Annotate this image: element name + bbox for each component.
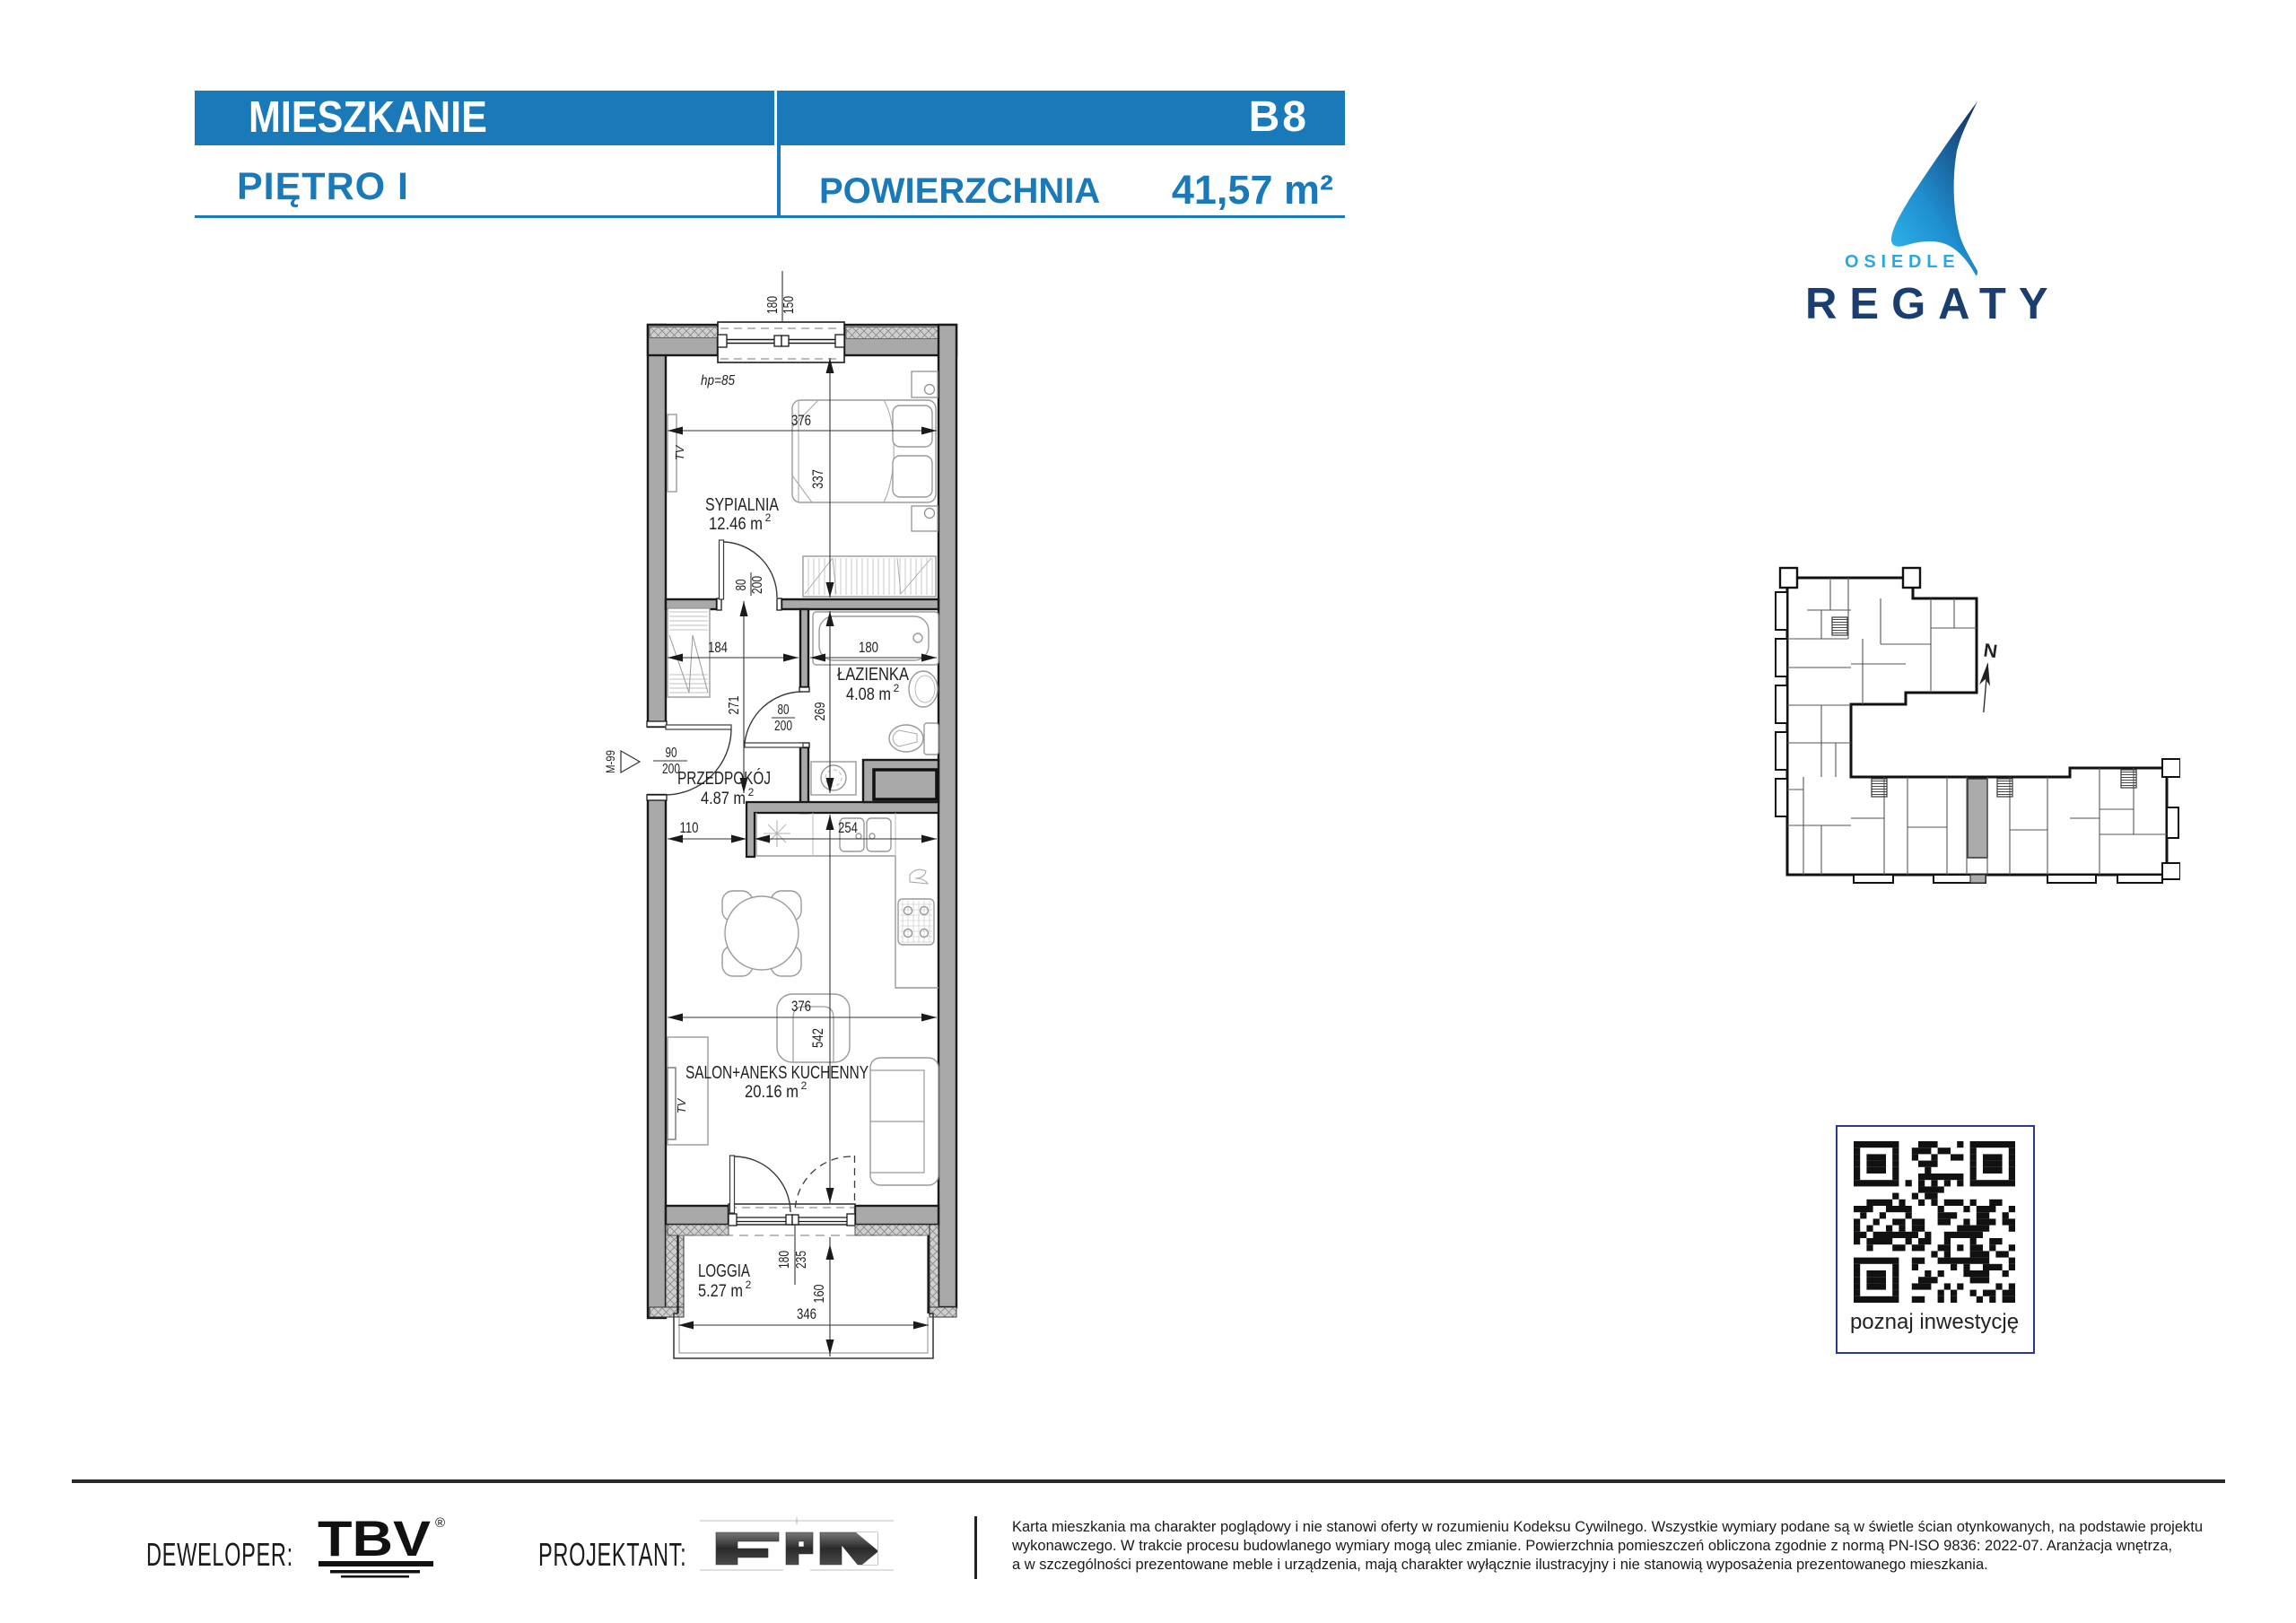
svg-text:271: 271 [727,696,742,715]
svg-text:2: 2 [748,786,755,798]
svg-text:110: 110 [680,819,699,836]
svg-text:2: 2 [801,1079,808,1092]
svg-text:150: 150 [781,296,797,314]
svg-text:180: 180 [765,296,781,314]
svg-text:REGATY: REGATY [1805,280,2061,328]
svg-text:180: 180 [777,1251,792,1269]
svg-text:20.16 m: 20.16 m [745,1082,799,1102]
svg-text:80: 80 [778,702,790,718]
svg-text:TBV: TBV [318,1511,431,1566]
svg-text:2: 2 [746,1278,752,1291]
svg-text:SALON+ANEKS KUCHENNY: SALON+ANEKS KUCHENNY [685,1062,869,1083]
svg-text:80: 80 [734,579,749,590]
svg-text:12.46 m: 12.46 m [709,514,763,534]
svg-text:90: 90 [666,746,677,761]
svg-text:184: 184 [708,639,728,656]
svg-text:235: 235 [794,1251,809,1269]
svg-text:200: 200 [774,719,792,734]
svg-text:180: 180 [859,639,878,656]
svg-text:200: 200 [750,576,765,594]
svg-text:TV: TV [675,1097,688,1113]
svg-text:2: 2 [765,511,772,524]
svg-text:337: 337 [809,469,826,489]
svg-text:2: 2 [894,682,900,694]
svg-text:376: 376 [791,998,811,1015]
svg-text:®: ® [435,1515,445,1531]
svg-text:5.27 m: 5.27 m [698,1281,743,1301]
svg-text:160: 160 [812,1284,827,1303]
svg-text:hp=85: hp=85 [701,373,735,388]
svg-text:542: 542 [809,1028,826,1048]
svg-text:OSIEDLE: OSIEDLE [1845,252,1960,272]
svg-text:M-99: M-99 [604,750,617,773]
svg-text:269: 269 [813,702,828,721]
svg-text:376: 376 [791,412,811,429]
svg-text:4.87 m: 4.87 m [701,789,746,808]
svg-text:PRZEDPOKÓJ: PRZEDPOKÓJ [677,768,771,789]
svg-text:TV: TV [673,444,686,460]
svg-text:N: N [1982,640,1998,662]
svg-text:346: 346 [797,1305,816,1322]
svg-text:4.08 m: 4.08 m [846,685,891,704]
svg-text:254: 254 [838,819,858,836]
svg-text:LOGGIA: LOGGIA [698,1261,750,1281]
